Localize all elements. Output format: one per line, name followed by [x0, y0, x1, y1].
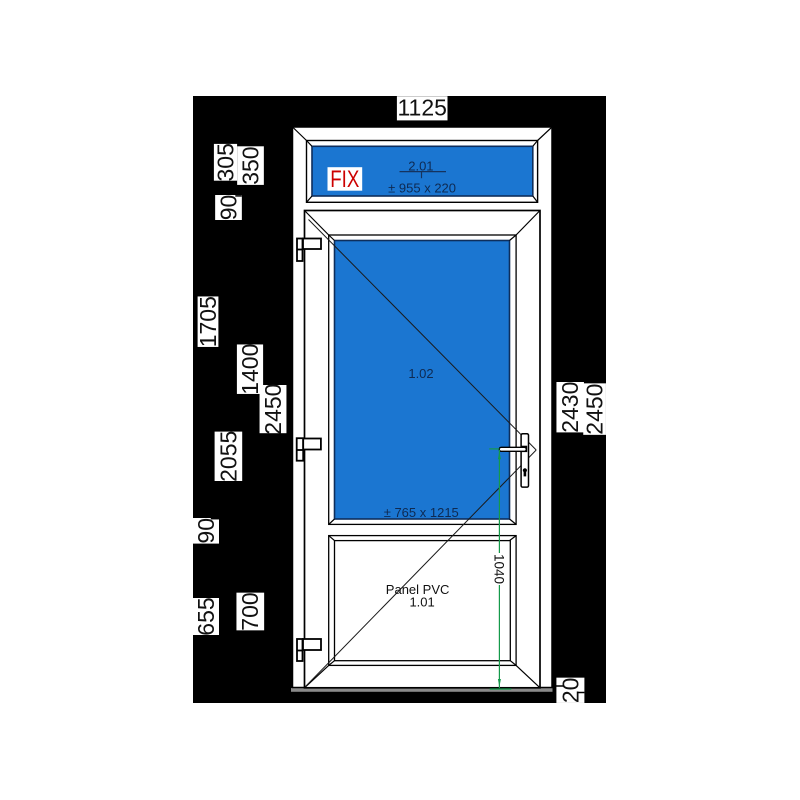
svg-text:1.01: 1.01: [409, 594, 434, 609]
svg-text:700: 700: [237, 592, 263, 630]
svg-text:2450: 2450: [582, 384, 608, 435]
svg-text:305: 305: [212, 143, 238, 181]
svg-text:90: 90: [215, 195, 241, 221]
svg-text:350: 350: [237, 146, 263, 184]
svg-text:655: 655: [193, 597, 219, 635]
svg-text:2450: 2450: [260, 384, 286, 435]
svg-text:FIX: FIX: [330, 166, 359, 193]
svg-text:1125: 1125: [397, 94, 446, 120]
svg-text:1705: 1705: [195, 296, 221, 347]
svg-text:1040: 1040: [491, 554, 506, 584]
svg-text:2055: 2055: [215, 431, 241, 482]
svg-text:1.02: 1.02: [408, 366, 433, 381]
svg-text:2430: 2430: [557, 382, 583, 433]
svg-text:± 955 x 220: ± 955 x 220: [388, 180, 456, 195]
svg-text:90: 90: [193, 518, 219, 544]
svg-text:20: 20: [557, 678, 583, 704]
svg-text:± 765 x 1215: ± 765 x 1215: [384, 505, 459, 520]
